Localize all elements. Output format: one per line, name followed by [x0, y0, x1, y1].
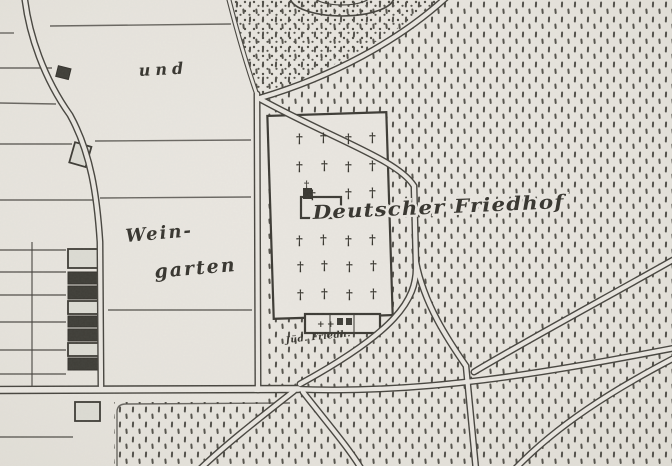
- map-scan: † †††††††††††††††††††††††++: [0, 0, 672, 466]
- map-canvas: † †††††††††††††††††††††††++: [0, 0, 672, 466]
- scan-grain-overlay: [0, 0, 672, 466]
